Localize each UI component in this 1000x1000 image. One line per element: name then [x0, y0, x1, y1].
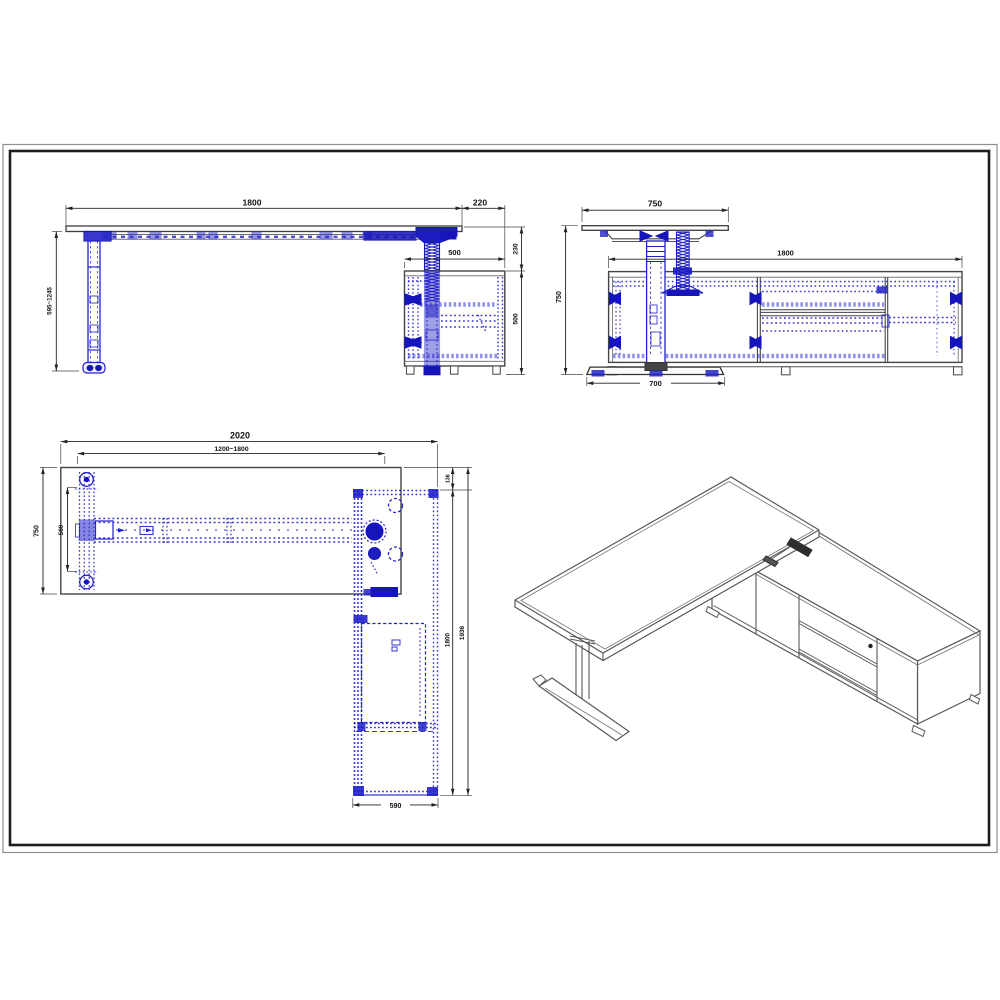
- svg-text:580: 580: [58, 524, 65, 535]
- svg-text:230: 230: [513, 243, 520, 255]
- svg-text:1800: 1800: [777, 248, 794, 257]
- svg-text:1800: 1800: [444, 632, 451, 647]
- svg-text:750: 750: [33, 525, 40, 537]
- svg-text:750: 750: [648, 198, 662, 208]
- svg-text:500: 500: [513, 313, 520, 325]
- svg-text:595~1245: 595~1245: [47, 287, 54, 315]
- svg-text:136: 136: [445, 474, 451, 483]
- svg-text:700: 700: [649, 379, 662, 388]
- svg-text:2020: 2020: [230, 430, 250, 440]
- svg-text:1200~1800: 1200~1800: [214, 446, 248, 453]
- svg-text:750: 750: [556, 291, 563, 303]
- svg-text:220: 220: [473, 198, 487, 208]
- svg-text:1936: 1936: [459, 625, 466, 640]
- svg-text:500: 500: [448, 248, 461, 257]
- svg-text:590: 590: [390, 803, 402, 810]
- svg-text:1800: 1800: [243, 198, 262, 208]
